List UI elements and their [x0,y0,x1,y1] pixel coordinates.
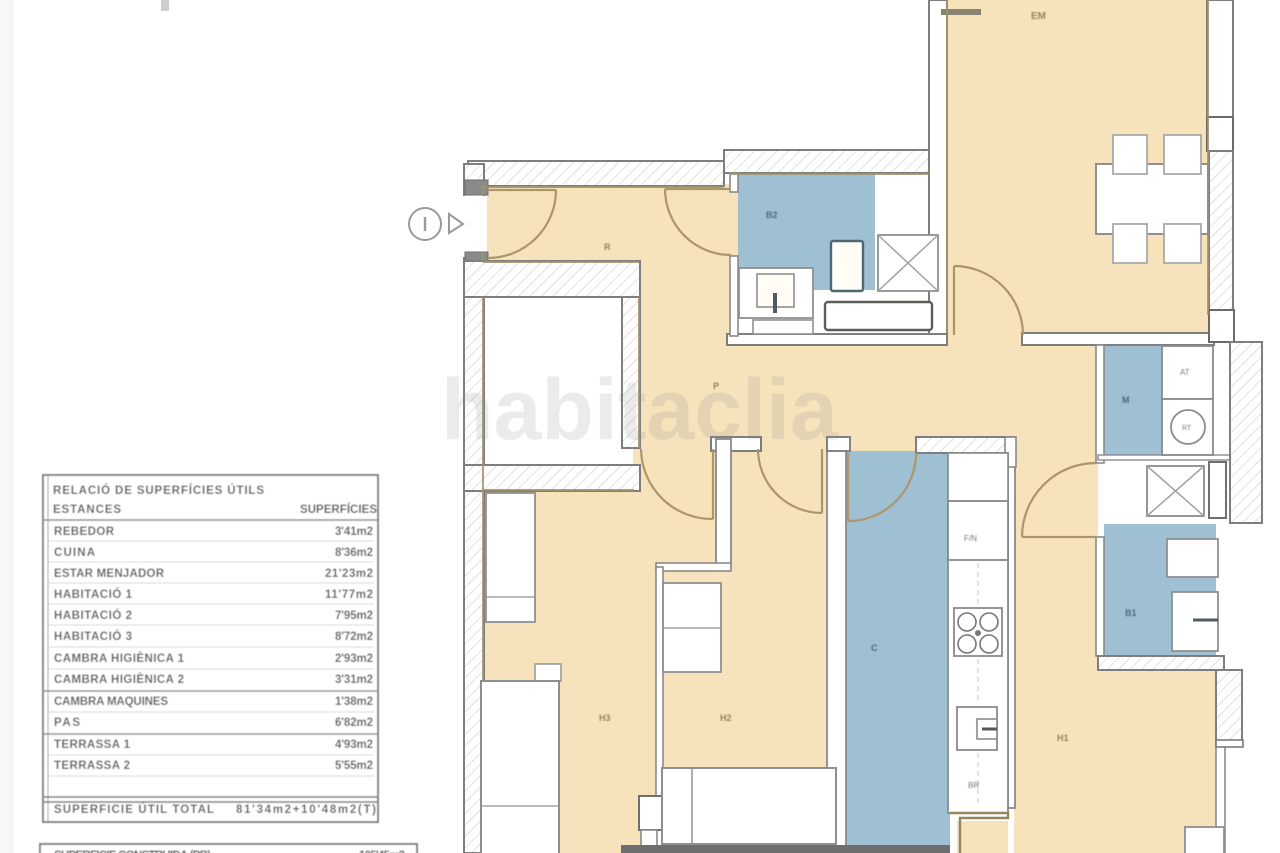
svg-text:8'36m2: 8'36m2 [335,547,373,559]
svg-text:SUPERFÍCIES: SUPERFÍCIES [300,503,377,516]
svg-text:3'41m2: 3'41m2 [335,526,373,538]
svg-text:CAMBRA MAQUINES: CAMBRA MAQUINES [54,696,168,708]
svg-text:B1: B1 [1125,608,1137,618]
svg-text:RT: RT [1182,425,1192,432]
svg-text:PAS: PAS [54,717,80,729]
svg-text:B2: B2 [766,210,778,220]
svg-text:AT: AT [1180,368,1190,377]
svg-text:habitaclia: habitaclia [441,362,839,458]
svg-text:R: R [604,242,611,252]
svg-text:TERRASSA 1: TERRASSA 1 [54,739,131,751]
svg-text:ESTANCES: ESTANCES [53,504,121,516]
svg-text:HABITACIÓ 2: HABITACIÓ 2 [54,609,132,622]
svg-text:11'77m2: 11'77m2 [325,589,373,601]
svg-text:4'93m2: 4'93m2 [335,739,373,751]
svg-text:ESTAR MENJADOR: ESTAR MENJADOR [54,568,165,580]
svg-text:HABITACIÓ 3: HABITACIÓ 3 [54,630,132,643]
svg-text:81'34m2+10'48m2(T): 81'34m2+10'48m2(T) [236,804,376,816]
svg-text:REBEDOR: REBEDOR [54,526,115,538]
svg-text:H3: H3 [599,713,611,723]
svg-text:5'55m2: 5'55m2 [335,760,373,772]
svg-text:BR: BR [968,781,979,790]
svg-text:8'72m2: 8'72m2 [335,631,373,643]
svg-text:EM: EM [1031,11,1046,22]
svg-text:F/N: F/N [964,534,977,543]
svg-text:CUINA: CUINA [54,547,95,559]
svg-text:SUPERFICIE ÚTIL TOTAL: SUPERFICIE ÚTIL TOTAL [54,803,214,816]
svg-text:RELACIÓ DE SUPERFÍCIES ÚTILS: RELACIÓ DE SUPERFÍCIES ÚTILS [53,484,264,497]
svg-text:C: C [871,643,878,653]
svg-text:6'82m2: 6'82m2 [335,717,373,729]
svg-text:H2: H2 [720,713,732,723]
svg-text:3'31m2: 3'31m2 [335,674,373,686]
svg-text:HABITACIÓ 1: HABITACIÓ 1 [54,588,133,601]
svg-text:21'23m2: 21'23m2 [325,568,373,580]
svg-text:CAMBRA HIGIÈNICA 1: CAMBRA HIGIÈNICA 1 [54,652,185,665]
svg-text:2'93m2: 2'93m2 [335,653,373,665]
svg-text:TERRASSA 2: TERRASSA 2 [54,760,130,772]
svg-text:M: M [1122,395,1130,405]
svg-text:H1: H1 [1057,733,1069,743]
svg-text:7'95m2: 7'95m2 [335,610,373,622]
svg-text:1'38m2: 1'38m2 [335,696,373,708]
svg-text:CAMBRA HIGIÈNICA 2: CAMBRA HIGIÈNICA 2 [54,673,184,686]
